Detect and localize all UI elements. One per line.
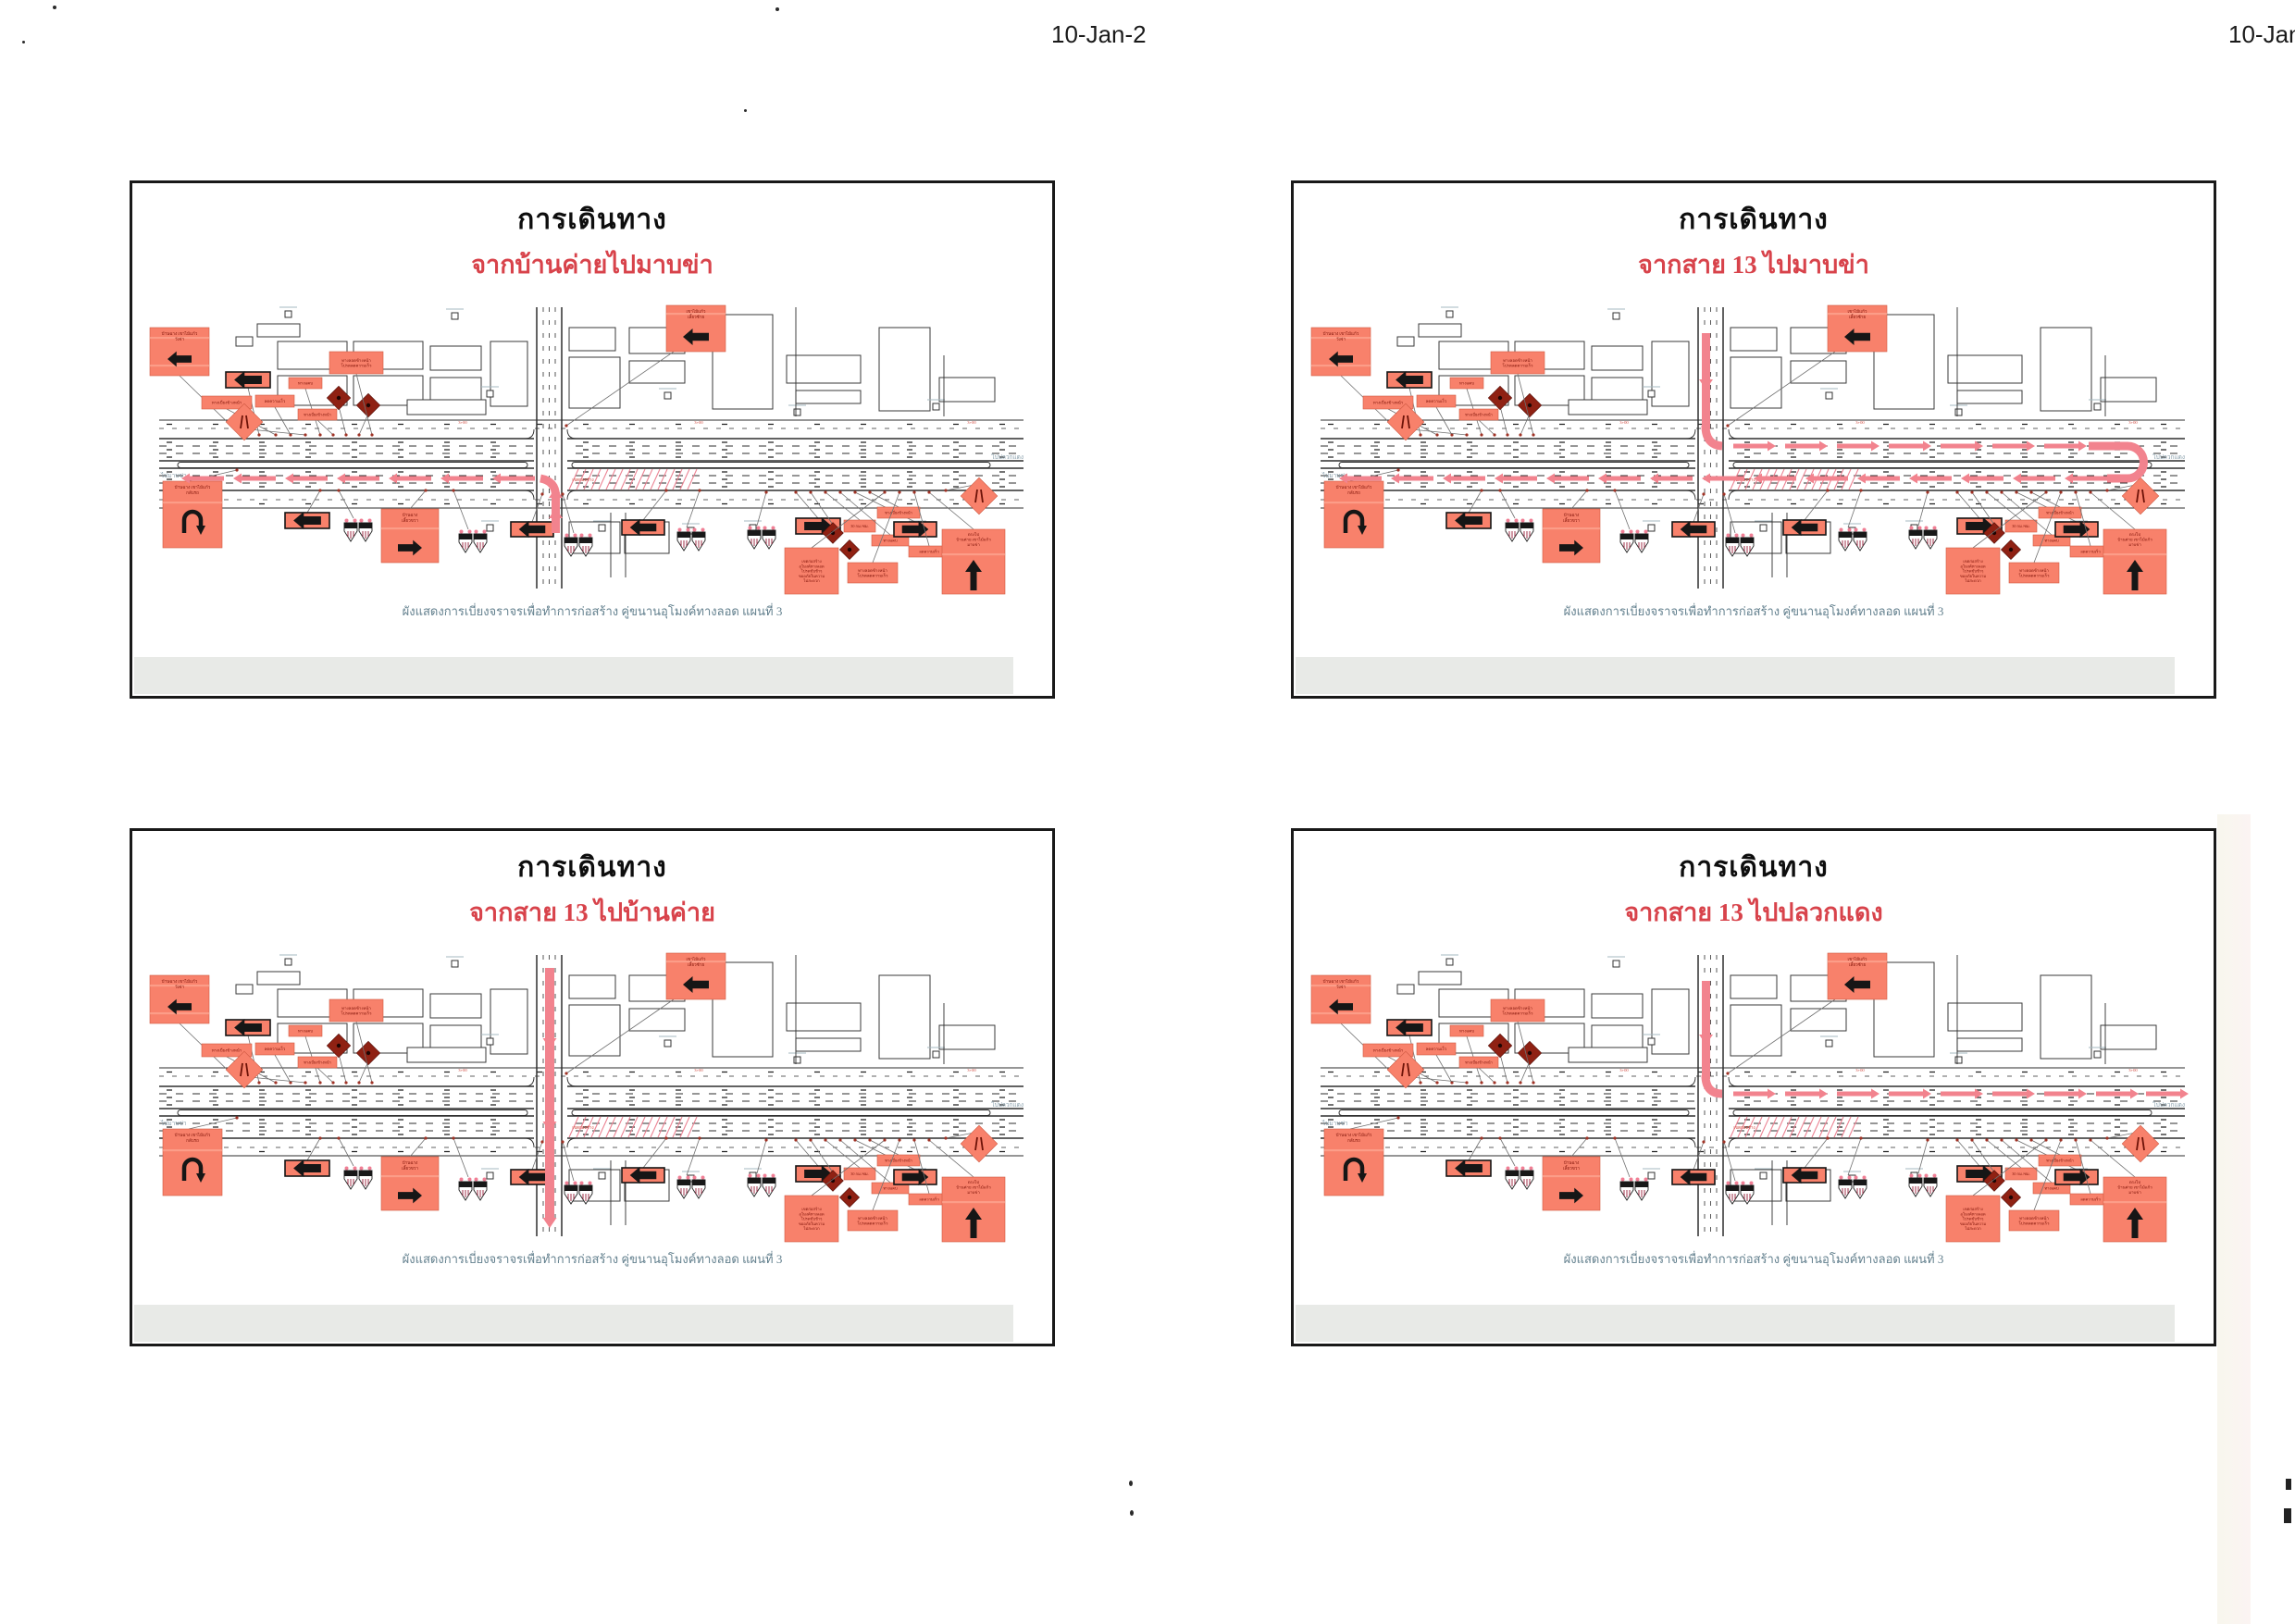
svg-text:วังจ่า: วังจ่า (175, 984, 185, 989)
svg-text:3+00: 3+00 (694, 1068, 703, 1072)
panel-title: การเดินทาง (1294, 198, 2214, 242)
svg-text:บ้านฉาง เขาไม้แก้ว: บ้านฉาง เขาไม้แก้ว (1336, 484, 1372, 490)
svg-text:ไปมาบข่า: ไปมาบข่า (160, 1120, 187, 1127)
svg-text:บ้านฉาง: บ้านฉาง (403, 513, 418, 517)
svg-text:ทางเบี่ยงข้างหน้า: ทางเบี่ยงข้างหน้า (1465, 1060, 1493, 1065)
svg-text:เลี้ยวซ้าย: เลี้ยวซ้าย (1849, 314, 1866, 319)
svg-text:3+00: 3+00 (1855, 420, 1865, 425)
svg-text:3+00: 3+00 (2128, 420, 2138, 425)
svg-text:โปรดลดความเร็ว: โปรดลดความเร็ว (341, 1009, 373, 1015)
svg-text:ขออภัยในความ: ขออภัยในความ (1960, 573, 1987, 578)
svg-text:ไม่สะดวก: ไม่สะดวก (802, 1225, 820, 1231)
svg-text:บ้านฉาง: บ้านฉาง (403, 1160, 418, 1165)
svg-text:เขาไม้แก้ว: เขาไม้แก้ว (1848, 308, 1867, 314)
svg-text:ทางเบี่ยงข้างหน้า: ทางเบี่ยงข้างหน้า (212, 1048, 242, 1053)
svg-text:ทางลอดข้างหน้า: ทางลอดข้างหน้า (2019, 568, 2049, 573)
svg-text:ลดความเร็ว: ลดความเร็ว (919, 549, 939, 554)
svg-text:เลี้ยวขวา: เลี้ยวขวา (1563, 517, 1580, 523)
svg-text:มาบข่า: มาบข่า (967, 542, 980, 547)
diagram-panel-ban-khai-to-map-kha: การเดินทาง จากบ้านค่ายไปมาบข่า เขตก่อสร้… (130, 180, 1055, 699)
svg-text:3+00: 3+00 (1619, 1068, 1629, 1072)
svg-text:เลี้ยวขวา: เลี้ยวขวา (402, 517, 418, 523)
svg-text:ไปปลวกแดง: ไปปลวกแดง (2152, 453, 2185, 461)
panel-subtitle: จากบ้านค่ายไปมาบข่า (132, 244, 1052, 284)
svg-text:3+00: 3+00 (458, 1068, 467, 1072)
svg-text:โปรดลดความเร็ว: โปรดลดความเร็ว (858, 571, 889, 577)
svg-text:ทางเบี่ยงข้างหน้า: ทางเบี่ยงข้างหน้า (304, 413, 331, 417)
svg-text:โปรดลดความเร็ว: โปรดลดความเร็ว (341, 361, 373, 367)
svg-text:ตรงไป: ตรงไป (968, 532, 980, 537)
svg-text:ขออภัยในความ: ขออภัยในความ (1960, 1221, 1987, 1226)
svg-text:3+00: 3+00 (694, 420, 703, 425)
diagram-panel-route13-to-pluak-daeng: การเดินทาง จากสาย 13 ไปปลวกแดง เขตก่อสร้… (1291, 828, 2216, 1346)
svg-text:ทางเบี่ยงข้างหน้า: ทางเบี่ยงข้างหน้า (304, 1060, 331, 1065)
svg-text:เขาไม้แก้ว: เขาไม้แก้ว (687, 308, 706, 314)
svg-text:บ้านค่าย เขาไม้แก้ว: บ้านค่าย เขาไม้แก้ว (956, 1185, 991, 1190)
svg-text:ทางลอดข้างหน้า: ทางลอดข้างหน้า (1503, 358, 1532, 363)
svg-text:3+00: 3+00 (458, 420, 467, 425)
svg-text:กลับรถ: กลับรถ (1347, 1137, 1360, 1143)
panel-caption: ผังแสดงการเบี่ยงจราจรเพื่อทำการก่อสร้าง … (1294, 601, 2214, 621)
svg-text:ทางลอดข้างหน้า: ทางลอดข้างหน้า (341, 358, 371, 363)
panel-caption: ผังแสดงการเบี่ยงจราจรเพื่อทำการก่อสร้าง … (132, 1249, 1052, 1269)
svg-text:3+00: 3+00 (1619, 420, 1629, 425)
svg-text:30 กม./ชม.: 30 กม./ชม. (2012, 524, 2029, 528)
svg-text:ทางลอดข้างหน้า: ทางลอดข้างหน้า (341, 1006, 371, 1010)
traffic-detour-map: เขตก่อสร้าง3+003+003+00ไปมาบข่าไปปลวกแดง… (148, 948, 1036, 1246)
detour-map-svg: เขตก่อสร้าง3+003+003+00ไปมาบข่าไปปลวกแดง… (1309, 300, 2198, 598)
svg-text:ทางแคบ: ทางแคบ (1459, 381, 1474, 386)
cut-character-mark (2286, 1479, 2291, 1490)
svg-text:วังจ่า: วังจ่า (1336, 984, 1346, 989)
svg-text:30 กม./ชม.: 30 กม./ชม. (850, 1172, 868, 1176)
svg-text:บ้านฉาง เขาไม้แก้ว: บ้านฉาง เขาไม้แก้ว (1323, 330, 1359, 336)
svg-text:ลดความเร็ว: ลดความเร็ว (919, 1196, 939, 1202)
svg-text:ไม่สะดวก: ไม่สะดวก (1964, 577, 1981, 583)
diagram-panel-route13-to-ban-khai: การเดินทาง จากสาย 13 ไปบ้านค่าย เขตก่อสร… (130, 828, 1055, 1346)
scan-date-center: 10-Jan-2 (1051, 20, 1147, 49)
svg-text:บ้านฉาง เขาไม้แก้ว: บ้านฉาง เขาไม้แก้ว (1323, 978, 1359, 984)
svg-text:ไปปลวกแดง: ไปปลวกแดง (990, 1101, 1023, 1109)
svg-text:ทางลอดข้างหน้า: ทางลอดข้างหน้า (858, 1216, 887, 1221)
scan-date-right: 10-Jan-2 (2228, 20, 2295, 49)
svg-text:เขตก่อสร้าง: เขตก่อสร้าง (1733, 1125, 1755, 1130)
svg-text:ทางแคบ: ทางแคบ (2044, 1186, 2059, 1191)
panel-title: การเดินทาง (132, 198, 1052, 242)
svg-text:กลับรถ: กลับรถ (186, 490, 199, 495)
svg-text:ลดความเร็ว: ลดความเร็ว (265, 397, 286, 403)
panel-subtitle: จากสาย 13 ไปปลวกแดง (1294, 892, 2214, 932)
svg-text:30 กม./ชม.: 30 กม./ชม. (2012, 1172, 2029, 1176)
svg-text:ทางเบี่ยงข้างหน้า: ทางเบี่ยงข้างหน้า (885, 1159, 912, 1163)
svg-text:ทางเบี่ยงข้างหน้า: ทางเบี่ยงข้างหน้า (212, 400, 242, 405)
svg-text:กลับรถ: กลับรถ (1347, 490, 1360, 495)
cut-character-mark (2284, 1508, 2291, 1523)
svg-text:วังจ่า: วังจ่า (1336, 336, 1346, 341)
scanned-document-page: { "page": { "scan_date_center": "10-Jan-… (0, 0, 2295, 1624)
svg-text:ทางลอดข้างหน้า: ทางลอดข้างหน้า (858, 568, 887, 573)
svg-text:บ้านฉาง: บ้านฉาง (1564, 1160, 1580, 1165)
panel-caption: ผังแสดงการเบี่ยงจราจรเพื่อทำการก่อสร้าง … (1294, 1249, 2214, 1269)
svg-text:วังจ่า: วังจ่า (175, 336, 185, 341)
svg-text:30 กม./ชม.: 30 กม./ชม. (850, 524, 868, 528)
svg-text:ตรงไป: ตรงไป (968, 1180, 980, 1184)
svg-text:เลี้ยวขวา: เลี้ยวขวา (402, 1165, 418, 1171)
scan-speck (53, 6, 56, 9)
scan-speck (1130, 1510, 1134, 1516)
svg-text:3+00: 3+00 (967, 1068, 976, 1072)
panel-title: การเดินทาง (1294, 846, 2214, 889)
traffic-detour-map: เขตก่อสร้าง3+003+003+00ไปมาบข่าไปปลวกแดง… (1309, 948, 2198, 1246)
svg-text:ขออภัยในความ: ขออภัยในความ (799, 1221, 825, 1226)
detour-map-svg: เขตก่อสร้าง3+003+003+00ไปมาบข่าไปปลวกแดง… (148, 948, 1036, 1246)
svg-text:มาบข่า: มาบข่า (967, 1190, 980, 1195)
scan-shading-strip (134, 657, 1013, 694)
svg-text:ทางลอดข้างหน้า: ทางลอดข้างหน้า (2019, 1216, 2049, 1221)
svg-text:บ้านค่าย เขาไม้แก้ว: บ้านค่าย เขาไม้แก้ว (2117, 1185, 2152, 1190)
panel-caption: ผังแสดงการเบี่ยงจราจรเพื่อทำการก่อสร้าง … (132, 601, 1052, 621)
panel-subtitle: จากสาย 13 ไปมาบข่า (1294, 244, 2214, 284)
svg-text:เขตก่อสร้าง: เขตก่อสร้าง (572, 1125, 593, 1130)
svg-text:ไปมาบข่า: ไปมาบข่า (1321, 1120, 1348, 1127)
svg-text:บ้านฉาง เขาไม้แก้ว: บ้านฉาง เขาไม้แก้ว (175, 1132, 211, 1137)
svg-text:ทางเบี่ยงข้างหน้า: ทางเบี่ยงข้างหน้า (885, 511, 912, 515)
svg-text:ตรงไป: ตรงไป (2129, 532, 2141, 537)
svg-text:ทางแคบ: ทางแคบ (298, 1029, 313, 1034)
svg-text:เลี้ยวซ้าย: เลี้ยวซ้าย (688, 961, 704, 967)
svg-text:ลดความเร็ว: ลดความเร็ว (1426, 397, 1447, 403)
svg-text:ไปปลวกแดง: ไปปลวกแดง (990, 453, 1023, 461)
svg-text:บ้านฉาง เขาไม้แก้ว: บ้านฉาง เขาไม้แก้ว (162, 330, 198, 336)
svg-text:3+00: 3+00 (1855, 1068, 1865, 1072)
scan-speck (775, 7, 779, 11)
svg-text:ลดความเร็ว: ลดความเร็ว (2080, 1196, 2101, 1202)
svg-text:เลี้ยวซ้าย: เลี้ยวซ้าย (688, 314, 704, 319)
svg-text:โปรดลดความเร็ว: โปรดลดความเร็ว (858, 1219, 889, 1225)
svg-text:ทางแคบ: ทางแคบ (883, 539, 898, 543)
svg-text:ตรงไป: ตรงไป (2129, 1180, 2141, 1184)
svg-text:กลับรถ: กลับรถ (186, 1137, 199, 1143)
svg-text:ทางแคบ: ทางแคบ (2044, 539, 2059, 543)
svg-text:บ้านค่าย เขาไม้แก้ว: บ้านค่าย เขาไม้แก้ว (2117, 538, 2152, 542)
scan-speck (744, 109, 747, 112)
svg-text:โปรดลดความเร็ว: โปรดลดความเร็ว (1503, 1009, 1534, 1015)
panel-subtitle: จากสาย 13 ไปบ้านค่าย (132, 892, 1052, 932)
diagram-panel-route13-to-map-kha: การเดินทาง จากสาย 13 ไปมาบข่า เขตก่อสร้า… (1291, 180, 2216, 699)
svg-text:เขตก่อสร้าง: เขตก่อสร้าง (572, 477, 593, 482)
svg-text:3+00: 3+00 (967, 420, 976, 425)
svg-text:โปรดลดความเร็ว: โปรดลดความเร็ว (2019, 571, 2051, 577)
svg-text:ลดความเร็ว: ลดความเร็ว (265, 1045, 286, 1051)
svg-text:ทางเบี่ยงข้างหน้า: ทางเบี่ยงข้างหน้า (1373, 1048, 1404, 1053)
panel-title: การเดินทาง (132, 846, 1052, 889)
scan-shading-strip (1296, 657, 2175, 694)
svg-text:เขาไม้แก้ว: เขาไม้แก้ว (687, 956, 706, 961)
svg-text:มาบข่า: มาบข่า (2128, 1190, 2141, 1195)
svg-text:ไม่สะดวก: ไม่สะดวก (1964, 1225, 1981, 1231)
svg-text:เลี้ยวซ้าย: เลี้ยวซ้าย (1849, 961, 1866, 967)
svg-text:เลี้ยวขวา: เลี้ยวขวา (1563, 1165, 1580, 1171)
svg-text:ทางเบี่ยงข้างหน้า: ทางเบี่ยงข้างหน้า (1465, 413, 1493, 417)
svg-text:โปรดลดความเร็ว: โปรดลดความเร็ว (2019, 1219, 2051, 1225)
svg-text:ทางลอดข้างหน้า: ทางลอดข้างหน้า (1503, 1006, 1532, 1010)
scan-edge-tint (2217, 814, 2251, 1624)
svg-text:บ้านฉาง: บ้านฉาง (1564, 513, 1580, 517)
svg-text:ลดความเร็ว: ลดความเร็ว (2080, 549, 2101, 554)
svg-text:ทางเบี่ยงข้างหน้า: ทางเบี่ยงข้างหน้า (2046, 1159, 2074, 1163)
svg-text:3+00: 3+00 (2128, 1068, 2138, 1072)
svg-text:ไปปลวกแดง: ไปปลวกแดง (2152, 1101, 2185, 1109)
svg-text:โปรดลดความเร็ว: โปรดลดความเร็ว (1503, 361, 1534, 367)
svg-text:ทางแคบ: ทางแคบ (883, 1186, 898, 1191)
scan-speck (22, 41, 25, 43)
svg-text:ทางเบี่ยงข้างหน้า: ทางเบี่ยงข้างหน้า (1373, 400, 1404, 405)
svg-text:บ้านฉาง เขาไม้แก้ว: บ้านฉาง เขาไม้แก้ว (175, 484, 211, 490)
detour-map-svg: เขตก่อสร้าง3+003+003+00ไปมาบข่าไปปลวกแดง… (1309, 948, 2198, 1246)
svg-text:ทางแคบ: ทางแคบ (1459, 1029, 1474, 1034)
scan-speck (1129, 1481, 1133, 1486)
svg-text:บ้านฉาง เขาไม้แก้ว: บ้านฉาง เขาไม้แก้ว (162, 978, 198, 984)
svg-text:ทางเบี่ยงข้างหน้า: ทางเบี่ยงข้างหน้า (2046, 511, 2074, 515)
svg-text:เขาไม้แก้ว: เขาไม้แก้ว (1848, 956, 1867, 961)
svg-text:ทางแคบ: ทางแคบ (298, 381, 313, 386)
svg-text:บ้านค่าย เขาไม้แก้ว: บ้านค่าย เขาไม้แก้ว (956, 538, 991, 542)
svg-text:ไม่สะดวก: ไม่สะดวก (802, 577, 820, 583)
scan-shading-strip (1296, 1305, 2175, 1342)
traffic-detour-map: เขตก่อสร้าง3+003+003+00ไปมาบข่าไปปลวกแดง… (1309, 300, 2198, 598)
svg-text:บ้านฉาง เขาไม้แก้ว: บ้านฉาง เขาไม้แก้ว (1336, 1132, 1372, 1137)
svg-text:ลดความเร็ว: ลดความเร็ว (1426, 1045, 1447, 1051)
detour-map-svg: เขตก่อสร้าง3+003+003+00ไปมาบข่าไปปลวกแดง… (148, 300, 1036, 598)
svg-text:ขออภัยในความ: ขออภัยในความ (799, 573, 825, 578)
traffic-detour-map: เขตก่อสร้าง3+003+003+00ไปมาบข่าไปปลวกแดง… (148, 300, 1036, 598)
scan-shading-strip (134, 1305, 1013, 1342)
svg-text:มาบข่า: มาบข่า (2128, 542, 2141, 547)
